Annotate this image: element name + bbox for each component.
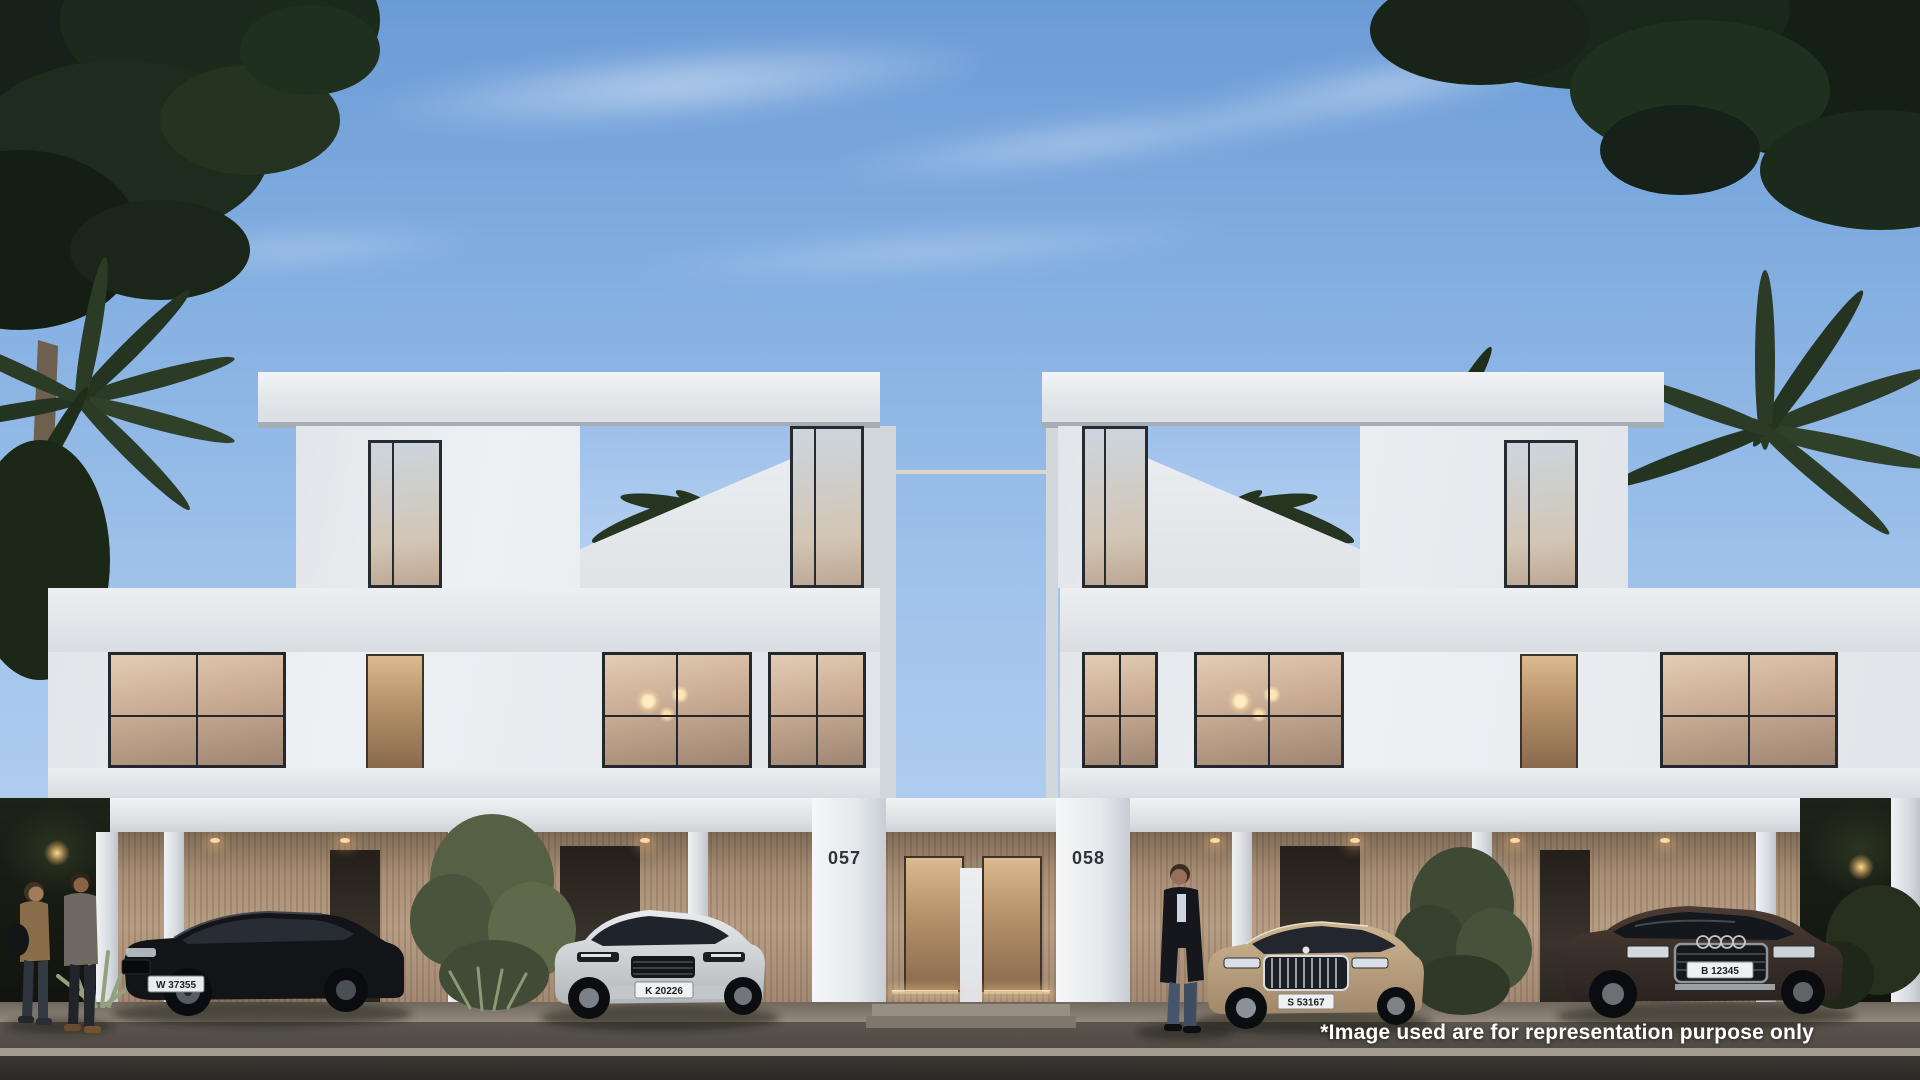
villa-render-image: 057 058 xyxy=(0,0,1920,1080)
black-sedan-car: W 37355 xyxy=(122,912,404,1016)
disclaimer-text: *Image used are for representation purpo… xyxy=(1320,1021,1814,1045)
license-plate-text: K 20226 xyxy=(645,986,683,997)
champagne-sedan-car: S 53167 xyxy=(1208,922,1424,1029)
shrub-between-cars xyxy=(410,814,576,1010)
woman-figure xyxy=(7,882,52,1025)
license-plate-text: B 12345 xyxy=(1701,966,1739,977)
man-figure xyxy=(64,872,101,1033)
silver-suv-car: K 20226 xyxy=(555,910,765,1019)
foreground-objects: W 37355 K 20226 xyxy=(0,0,1920,1080)
headlight xyxy=(126,948,156,957)
hood-ornament xyxy=(1303,947,1310,954)
brown-suv-car: B 12345 xyxy=(1565,906,1843,1018)
walking-couple xyxy=(7,872,101,1033)
license-plate-text: S 53167 xyxy=(1287,998,1325,1009)
man-in-coat xyxy=(1160,864,1204,1033)
license-plate-text: W 37355 xyxy=(156,980,196,991)
